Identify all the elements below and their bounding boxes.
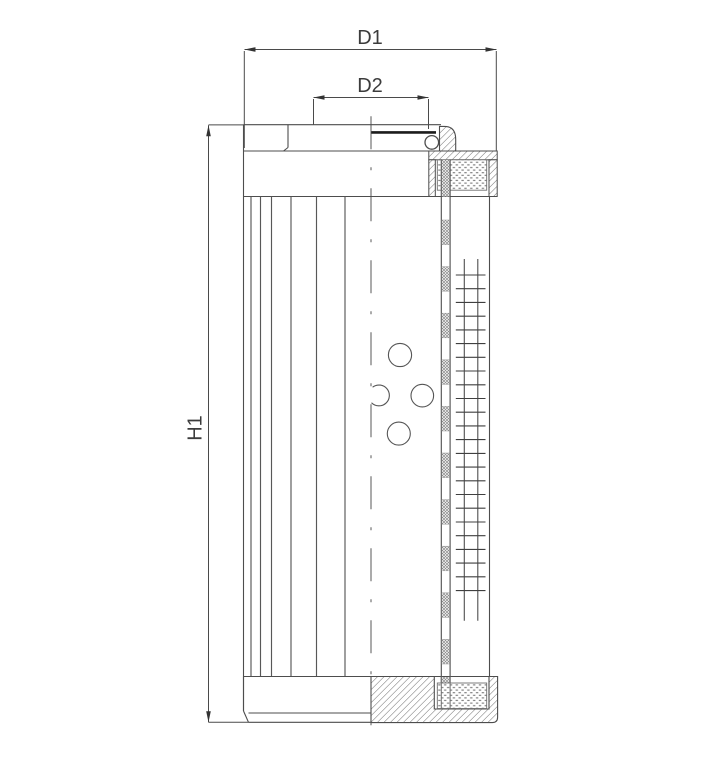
svg-text:H1: H1 bbox=[185, 415, 207, 441]
svg-text:D1: D1 bbox=[357, 27, 383, 49]
svg-text:D2: D2 bbox=[357, 75, 383, 97]
